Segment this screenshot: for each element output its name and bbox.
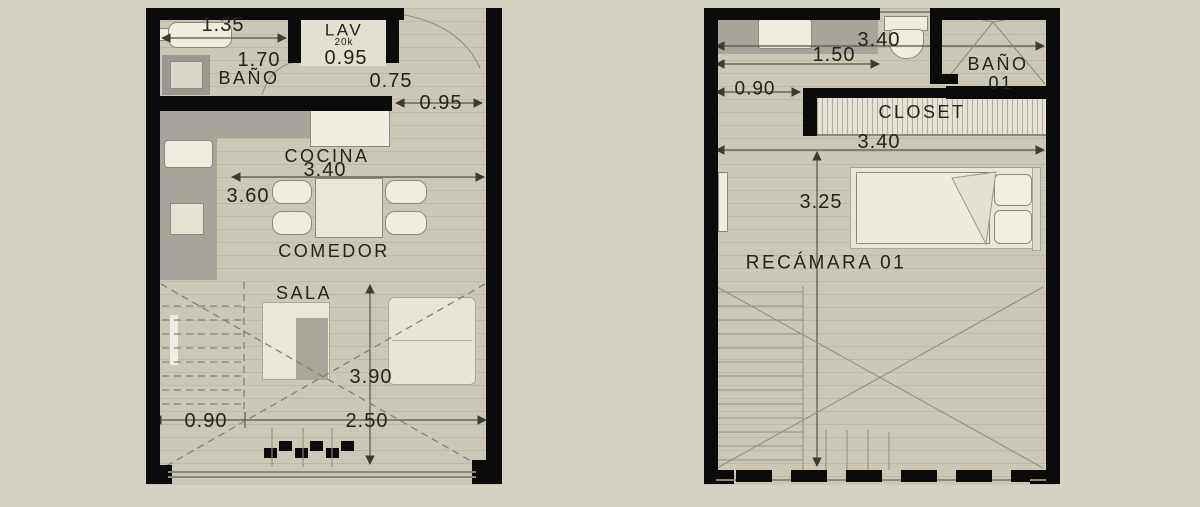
dim-label-3-25: 3.25 <box>800 192 843 212</box>
right-plan-wall-top-b <box>930 8 1060 20</box>
left-plan-wall-right <box>486 8 502 478</box>
dim-label-1-50: 1.50 <box>813 45 856 65</box>
room-label-lav: LAV <box>325 22 363 39</box>
dim-label-3-60: 3.60 <box>227 186 270 206</box>
lav-wall-left <box>288 8 301 63</box>
left-plan-wall-corner-br <box>472 460 502 484</box>
bed-blanket-fold <box>952 172 996 244</box>
banio01-door-jamb <box>930 70 942 84</box>
left-plan-window-sill <box>168 471 476 473</box>
dim-label-0-90-upper: 0.90 <box>735 80 776 99</box>
dim-label-1-35: 1.35 <box>202 15 245 35</box>
lav-wall-right <box>386 8 399 63</box>
dim-label-3-40-top: 3.40 <box>858 30 901 50</box>
door-arc-terrace <box>399 14 480 68</box>
left-plan-wall-corner-bl <box>146 465 172 484</box>
dim-label-0-75: 0.75 <box>370 71 413 91</box>
room-label-banio01: BAÑO <box>967 55 1028 73</box>
banio01-door-jamb <box>942 74 958 84</box>
right-plan-wall-corner-br <box>1030 470 1060 484</box>
room-label-banio01-number: 01 <box>988 74 1013 92</box>
right-plan-wall-left <box>704 8 718 483</box>
dim-label-0-90: 0.90 <box>185 411 228 431</box>
dim-label-0-95-door: 0.95 <box>420 93 463 113</box>
floorplan-canvas: 1.35 LAV 20k 1.70 0.95 BAÑO 0.75 0.95 CO… <box>0 0 1200 507</box>
left-plan-window-sill <box>168 476 476 478</box>
dim-label-3-90: 3.90 <box>350 367 393 387</box>
banio-wall-bottom <box>146 96 392 111</box>
right-plan-window-sill-top <box>880 11 930 13</box>
banio01-wall-left <box>930 8 942 72</box>
linework-overlay <box>0 0 1200 507</box>
room-label-recamara01: RECÁMARA 01 <box>746 254 907 273</box>
right-plan-wall-right <box>1046 8 1060 483</box>
room-label-closet: CLOSET <box>878 103 965 121</box>
room-label-banio: BAÑO <box>218 69 279 87</box>
left-stairs-dashed <box>161 282 485 469</box>
right-plan-dashed-wall-bottom <box>736 470 1030 482</box>
room-label-comedor: COMEDOR <box>278 242 390 260</box>
left-plan-wall-top <box>146 8 404 20</box>
room-label-sala: SALA <box>276 284 332 302</box>
dim-label-3-40-mid: 3.40 <box>858 132 901 152</box>
right-plan-wall-top-a <box>704 8 880 20</box>
right-plan-wall-corner-bl <box>704 470 734 484</box>
dim-label-1-70: 1.70 <box>238 50 281 70</box>
closet-wall-left <box>803 88 817 136</box>
left-plan-wall-left <box>146 8 160 477</box>
dim-label-0-95-lav: 0.95 <box>325 48 368 68</box>
dim-label-2-50: 2.50 <box>346 411 389 431</box>
dim-label-3-40-cocina: 3.40 <box>304 160 347 180</box>
